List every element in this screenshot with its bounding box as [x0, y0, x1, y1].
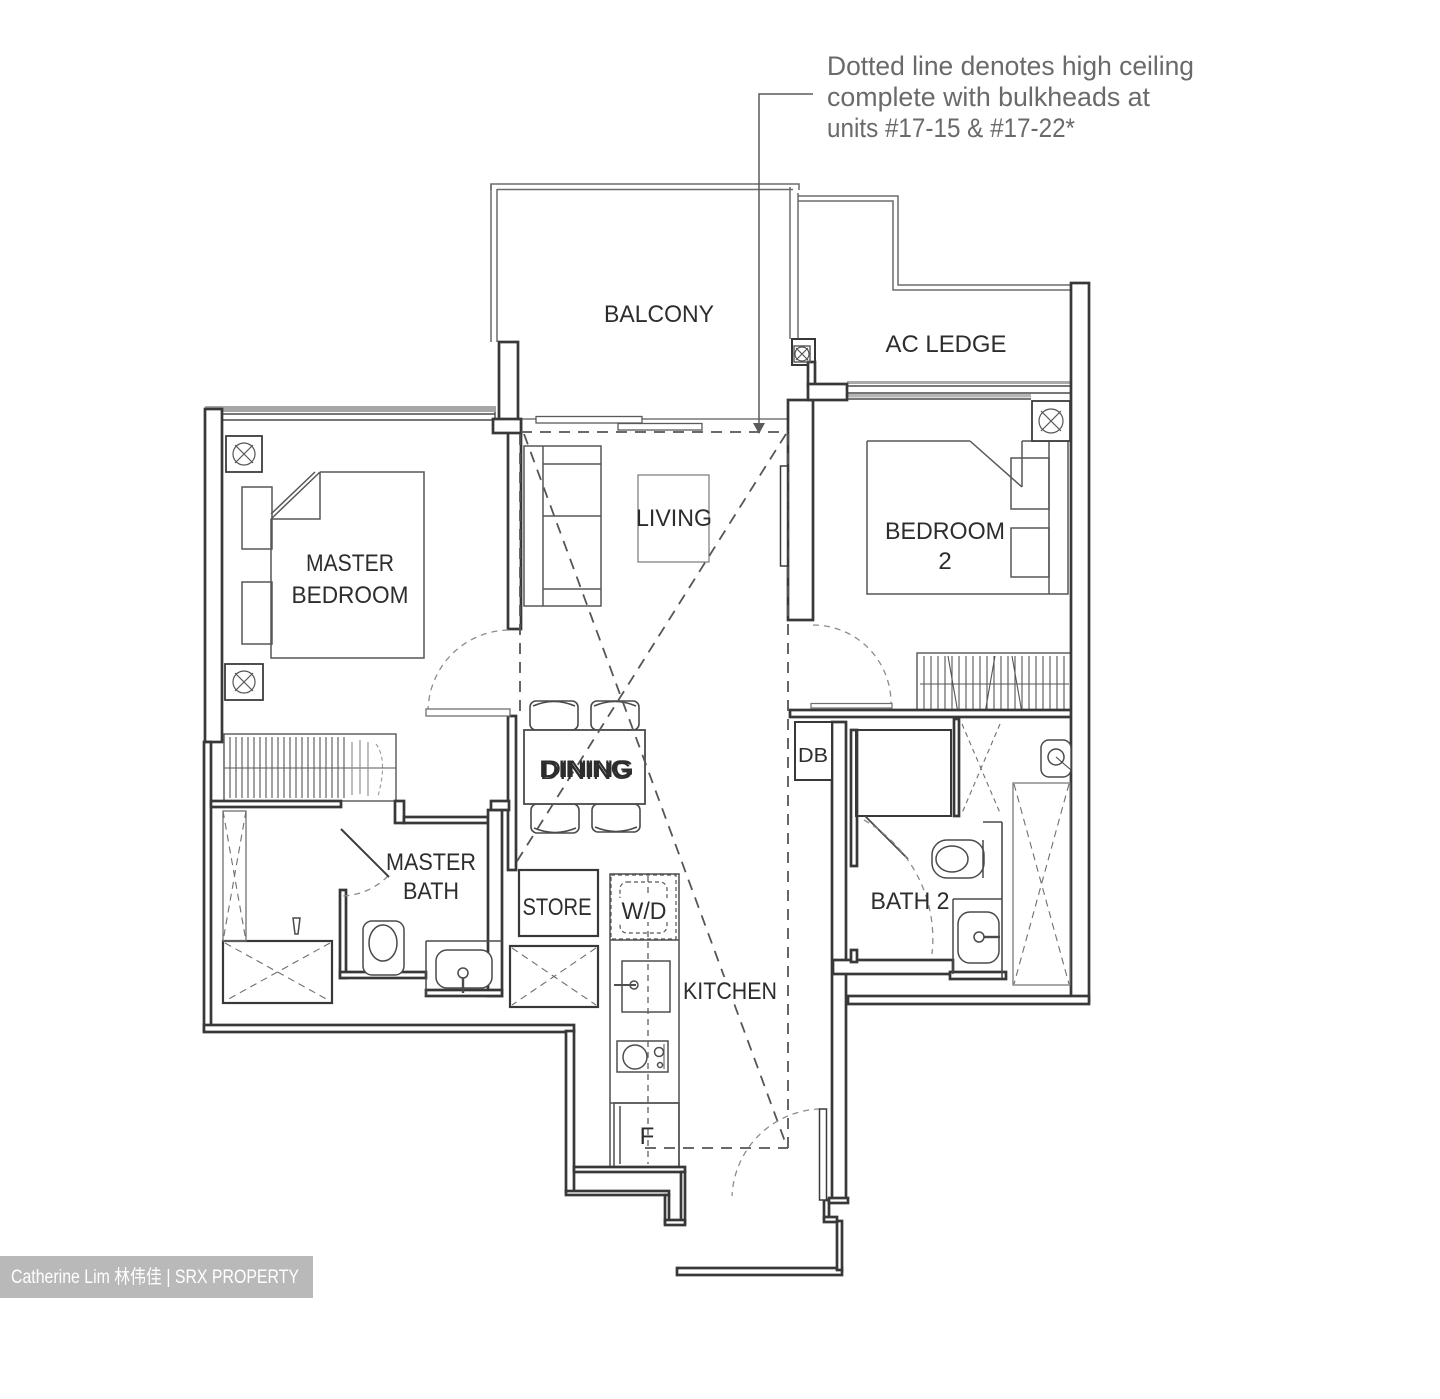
svg-text:BATH 2: BATH 2	[871, 888, 950, 915]
svg-text:2: 2	[938, 548, 951, 575]
svg-text:MASTER: MASTER	[306, 550, 394, 577]
svg-text:Dotted line denotes high ceili: Dotted line denotes high ceiling	[827, 51, 1194, 81]
svg-text:AC LEDGE: AC LEDGE	[886, 331, 1007, 358]
svg-text:BATH: BATH	[403, 878, 459, 905]
svg-text:W/D: W/D	[622, 898, 667, 925]
svg-text:Catherine Lim 林伟佳 | SRX PROPER: Catherine Lim 林伟佳 | SRX PROPERTY	[11, 1266, 299, 1288]
svg-text:MASTER: MASTER	[386, 849, 476, 876]
svg-text:F: F	[640, 1123, 655, 1150]
svg-text:BEDROOM: BEDROOM	[885, 518, 1005, 545]
svg-text:BALCONY: BALCONY	[604, 301, 714, 328]
svg-text:complete with bulkheads at: complete with bulkheads at	[827, 82, 1150, 112]
svg-text:units #17-15 & #17-22*: units #17-15 & #17-22*	[827, 113, 1075, 143]
svg-text:DINING: DINING	[540, 758, 632, 785]
svg-text:STORE: STORE	[523, 894, 592, 921]
svg-text:LIVING: LIVING	[636, 505, 712, 532]
svg-text:DB: DB	[798, 745, 828, 767]
svg-text:BEDROOM: BEDROOM	[292, 582, 409, 609]
svg-text:KITCHEN: KITCHEN	[683, 978, 777, 1005]
